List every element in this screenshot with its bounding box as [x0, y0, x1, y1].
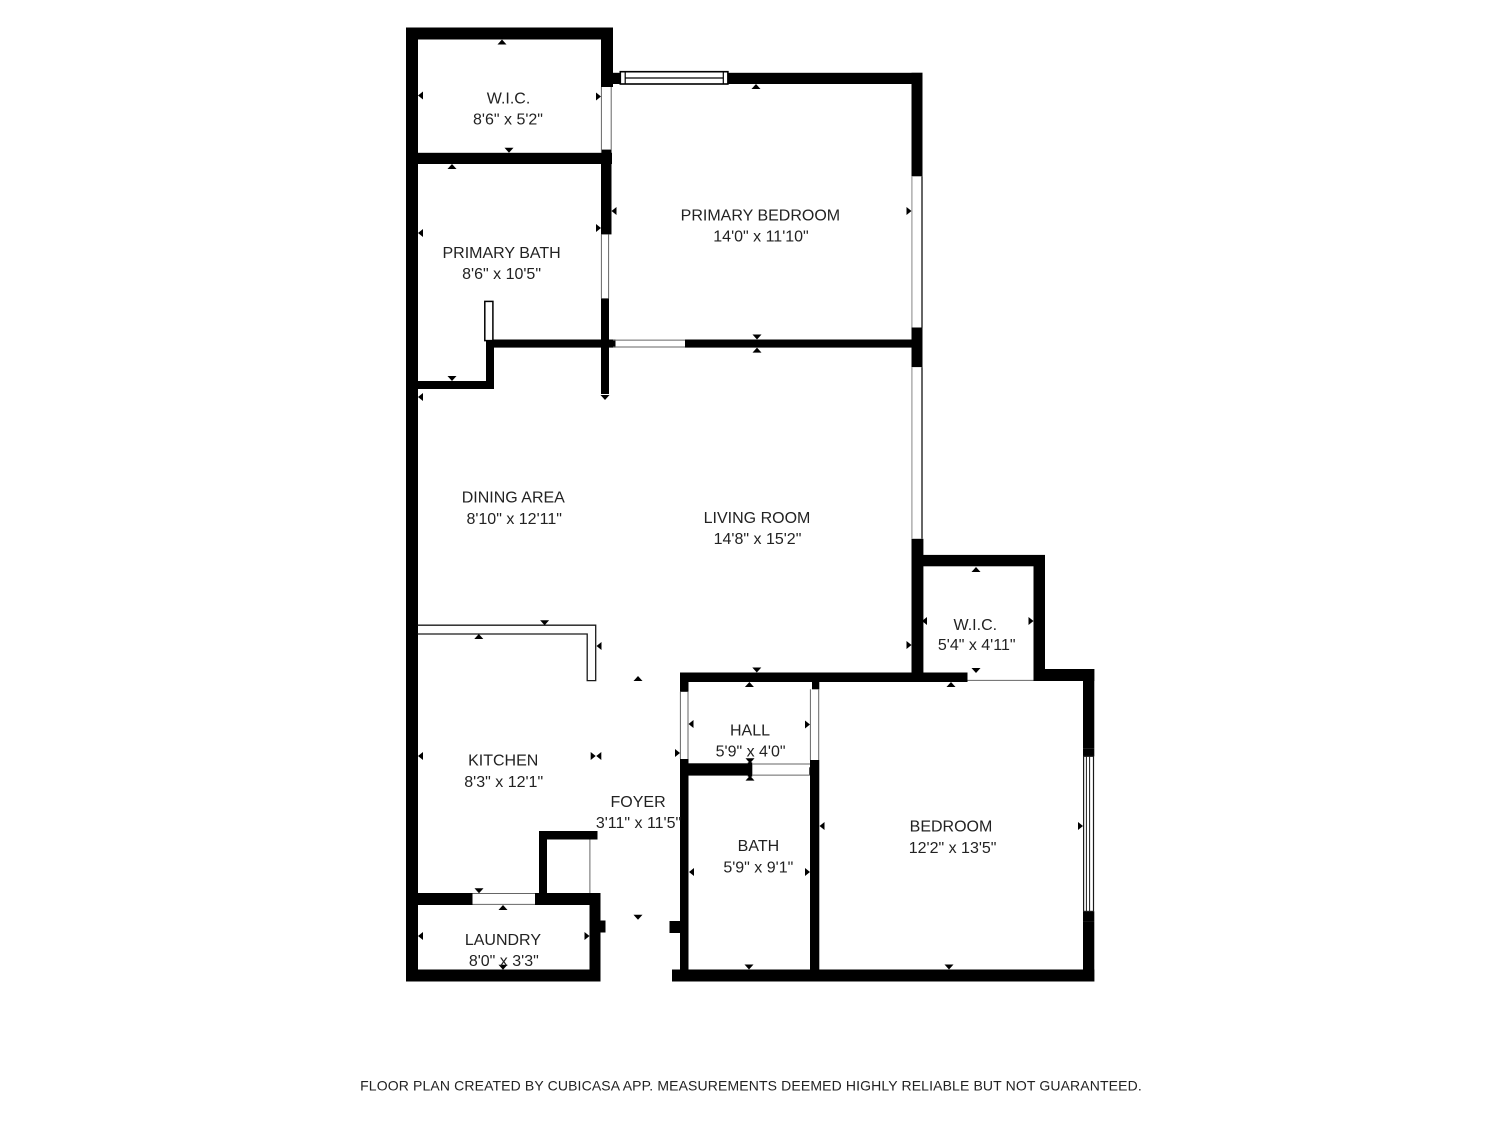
svg-text:HALL: HALL — [730, 722, 770, 739]
svg-text:PRIMARY BATH: PRIMARY BATH — [442, 245, 560, 262]
svg-text:8'0" x 3'3": 8'0" x 3'3" — [469, 953, 539, 970]
svg-text:5'9" x 4'0": 5'9" x 4'0" — [716, 743, 786, 760]
svg-text:5'4" x 4'11": 5'4" x 4'11" — [938, 637, 1016, 654]
svg-text:LAUNDRY: LAUNDRY — [465, 932, 542, 949]
svg-text:12'2" x 13'5": 12'2" x 13'5" — [909, 840, 997, 857]
svg-text:W.I.C.: W.I.C. — [954, 617, 998, 634]
svg-text:PRIMARY BEDROOM: PRIMARY BEDROOM — [681, 208, 840, 225]
svg-text:W.I.C.: W.I.C. — [487, 91, 531, 108]
svg-text:14'0" x 11'10": 14'0" x 11'10" — [713, 229, 808, 246]
svg-text:8'3" x 12'1": 8'3" x 12'1" — [464, 774, 543, 791]
svg-text:14'8" x 15'2": 14'8" x 15'2" — [714, 531, 802, 548]
svg-text:3'11" x 11'5": 3'11" x 11'5" — [596, 815, 681, 832]
svg-text:FOYER: FOYER — [611, 794, 666, 811]
svg-text:BEDROOM: BEDROOM — [910, 819, 993, 836]
svg-text:8'6" x 10'5": 8'6" x 10'5" — [462, 266, 541, 283]
svg-text:BATH: BATH — [738, 838, 779, 855]
svg-text:5'9" x 9'1": 5'9" x 9'1" — [723, 859, 793, 876]
svg-text:8'10" x 12'11": 8'10" x 12'11" — [466, 511, 561, 528]
svg-text:LIVING ROOM: LIVING ROOM — [704, 510, 811, 527]
svg-text:8'6" x 5'2": 8'6" x 5'2" — [473, 112, 543, 129]
svg-text:FLOOR PLAN CREATED BY CUBICASA: FLOOR PLAN CREATED BY CUBICASA APP. MEAS… — [360, 1078, 1142, 1094]
svg-text:DINING AREA: DINING AREA — [462, 490, 565, 507]
svg-text:KITCHEN: KITCHEN — [468, 753, 538, 770]
